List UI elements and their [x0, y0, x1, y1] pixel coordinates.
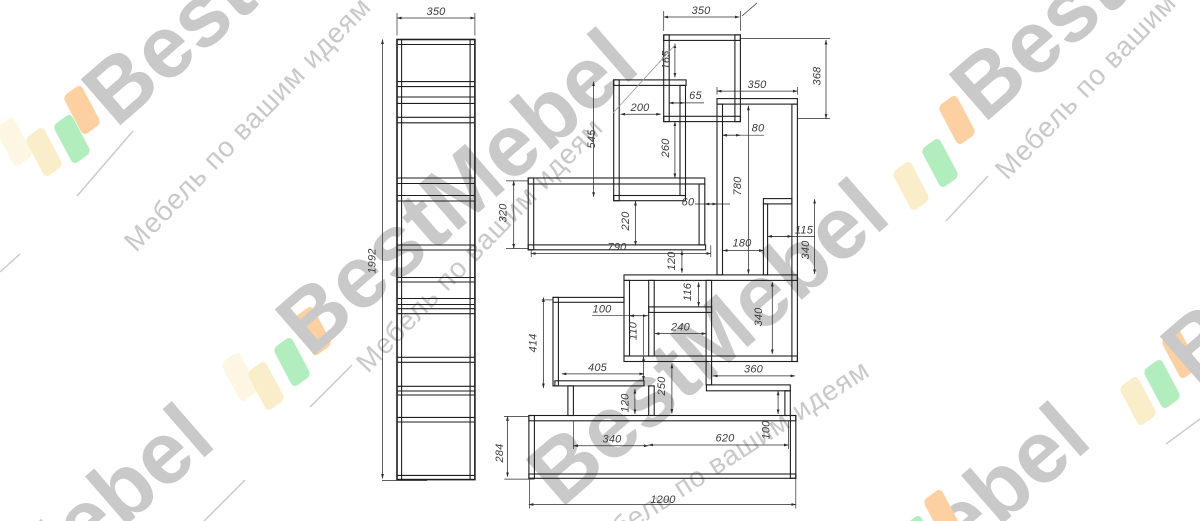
- svg-text:220: 220: [620, 211, 632, 232]
- svg-text:620: 620: [716, 433, 736, 445]
- svg-text:340: 340: [753, 307, 765, 327]
- svg-text:110: 110: [627, 321, 639, 340]
- svg-text:100: 100: [760, 420, 772, 440]
- svg-text:250: 250: [656, 376, 668, 397]
- svg-text:368: 368: [811, 66, 823, 86]
- svg-text:240: 240: [670, 322, 691, 334]
- svg-text:414: 414: [527, 334, 539, 353]
- svg-text:200: 200: [630, 102, 651, 114]
- svg-text:350: 350: [427, 6, 447, 18]
- svg-text:80: 80: [752, 123, 765, 135]
- svg-text:320: 320: [498, 203, 510, 223]
- svg-text:350: 350: [748, 79, 768, 91]
- svg-text:60: 60: [682, 197, 695, 209]
- svg-text:120: 120: [666, 251, 678, 271]
- svg-text:350: 350: [692, 5, 712, 17]
- svg-text:284: 284: [494, 444, 506, 464]
- svg-text:116: 116: [682, 282, 694, 301]
- svg-text:115: 115: [795, 225, 814, 237]
- svg-text:405: 405: [588, 362, 608, 374]
- svg-text:1200: 1200: [650, 494, 676, 506]
- svg-text:780: 780: [732, 176, 744, 196]
- svg-text:340: 340: [800, 240, 812, 260]
- svg-text:790: 790: [608, 242, 628, 254]
- svg-text:545: 545: [586, 129, 598, 149]
- svg-text:1992: 1992: [367, 248, 379, 273]
- svg-text:165: 165: [661, 50, 673, 70]
- svg-text:120: 120: [619, 393, 631, 413]
- svg-text:100: 100: [593, 304, 613, 316]
- svg-text:340: 340: [603, 434, 623, 446]
- svg-text:360: 360: [744, 364, 764, 376]
- svg-text:180: 180: [733, 238, 753, 250]
- svg-text:65: 65: [689, 90, 702, 102]
- svg-text:260: 260: [660, 138, 672, 159]
